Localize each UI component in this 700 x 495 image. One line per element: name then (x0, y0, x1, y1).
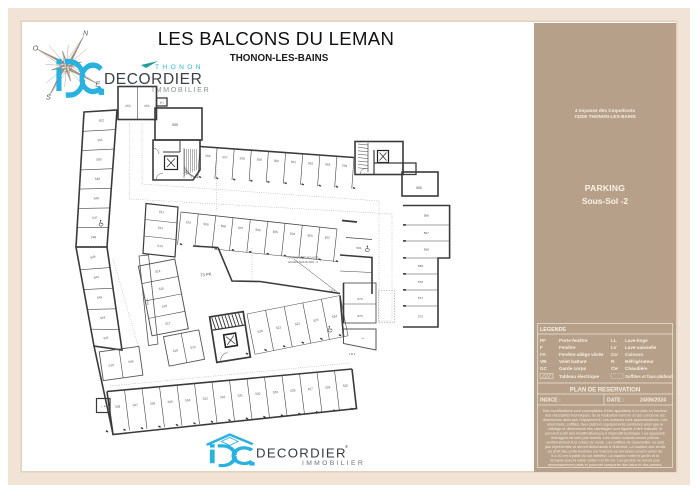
svg-text:509: 509 (203, 222, 209, 227)
svg-text:510: 510 (186, 220, 192, 225)
svg-text:Tableau électrique: Tableau électrique (559, 374, 599, 379)
svg-text:DATE :: DATE : (607, 398, 624, 404)
svg-text:524: 524 (332, 314, 338, 319)
svg-text:568: 568 (424, 248, 429, 252)
svg-text:IMMOBILIER: IMMOBILIER (302, 460, 365, 467)
svg-text:®: ® (345, 444, 348, 449)
svg-text:507: 507 (238, 226, 244, 231)
svg-text:GC: GC (540, 366, 548, 371)
svg-text:511: 511 (159, 210, 165, 215)
svg-text:504: 504 (290, 232, 296, 237)
svg-text:503: 503 (307, 233, 313, 238)
svg-text:520: 520 (257, 329, 263, 334)
svg-text:521: 521 (276, 325, 282, 330)
svg-text:536: 536 (150, 401, 156, 405)
svg-text:73 PK: 73 PK (200, 271, 212, 277)
svg-text:CU: CU (611, 352, 618, 357)
svg-text:Des modifications sont suscept: Des modifications sont susceptibles d'êt… (543, 409, 668, 413)
svg-text:501: 501 (356, 246, 361, 250)
svg-text:515: 515 (158, 286, 164, 291)
svg-text:514: 514 (155, 269, 161, 274)
svg-text:526: 526 (325, 385, 331, 389)
svg-text:567: 567 (424, 231, 429, 235)
svg-text:peuvent subir des modification: peuvent subir des modifications pour imp… (545, 432, 665, 436)
svg-text:PF: PF (540, 338, 546, 343)
svg-text:566: 566 (424, 213, 429, 217)
svg-text:537: 537 (132, 403, 138, 407)
svg-text:508: 508 (221, 224, 227, 229)
svg-text:Fenêtre allège vitrée: Fenêtre allège vitrée (559, 352, 604, 357)
svg-text:517: 517 (165, 321, 171, 326)
svg-text:543: 543 (97, 295, 103, 300)
svg-text:557: 557 (222, 155, 228, 159)
svg-text:574: 574 (357, 297, 362, 301)
svg-text:523: 523 (313, 318, 319, 323)
svg-text:565: 565 (416, 186, 422, 190)
svg-text:554: 554 (144, 104, 150, 108)
svg-text:552: 552 (99, 118, 105, 122)
svg-text:CH: CH (611, 366, 618, 371)
svg-text:502: 502 (325, 235, 331, 240)
svg-text:533: 533 (202, 396, 208, 400)
svg-text:531: 531 (237, 393, 243, 397)
svg-text:nécessairement plats et pourro: nécessairement plats et pourront comport… (548, 463, 663, 467)
svg-text:505: 505 (273, 230, 279, 235)
svg-text:des nécessités techniques, de: des nécessités techniques, de la réalisa… (545, 414, 665, 418)
svg-text:J.D 3: J.D 3 (349, 352, 356, 356)
svg-text:Chaudière: Chaudière (625, 366, 648, 371)
svg-text:terrasse pourra varier entre 0: terrasse pourra varier entre 0 et 60 cm.… (550, 459, 659, 463)
svg-text:535: 535 (167, 400, 173, 404)
svg-text:563: 563 (325, 162, 331, 166)
svg-text:571: 571 (418, 296, 423, 300)
svg-text:506: 506 (255, 228, 261, 233)
svg-text:F: F (540, 345, 543, 350)
svg-text:512: 512 (158, 226, 164, 231)
svg-text:527: 527 (308, 387, 314, 391)
svg-text:24/06/2024: 24/06/2024 (640, 398, 666, 404)
svg-text:câblage et dimensions des carr: câblage et dimensions des carrelages son… (548, 427, 663, 431)
svg-text:572: 572 (418, 315, 423, 319)
svg-text:530: 530 (255, 392, 261, 396)
svg-text:546: 546 (91, 235, 97, 239)
svg-text:R: R (611, 359, 615, 364)
svg-text:528: 528 (290, 388, 296, 392)
svg-text:ménagers ne sont pas fournis.: ménagers ne sont pas fournis. Les volets… (551, 436, 659, 440)
svg-text:556: 556 (205, 154, 211, 158)
svg-text:VB: VB (540, 359, 547, 364)
svg-text:538: 538 (115, 404, 121, 408)
svg-text:←×: ←× (100, 405, 106, 409)
svg-text:Volet battant: Volet battant (559, 359, 587, 364)
svg-text:562: 562 (308, 161, 314, 165)
svg-text:au droit des porte-fenêtres su: au droit des porte-fenêtres sur balcons … (548, 450, 663, 454)
svg-text:541: 541 (103, 335, 109, 340)
svg-text:5 à 10 cm à partir du sol inté: 5 à 10 cm à partir du sol intérieur. La … (551, 454, 660, 458)
svg-text:Porte-fenêtre: Porte-fenêtre (559, 338, 588, 343)
svg-text:522: 522 (294, 321, 300, 326)
svg-text:←: ← (361, 335, 366, 340)
svg-text:550: 550 (96, 157, 102, 161)
svg-text:513: 513 (157, 244, 163, 249)
svg-text:518: 518 (172, 348, 178, 353)
svg-text:539: 539 (108, 363, 114, 368)
svg-text:549: 549 (95, 177, 101, 181)
svg-text:529: 529 (273, 390, 279, 394)
svg-text:555: 555 (172, 123, 178, 127)
svg-text:547: 547 (92, 216, 98, 220)
svg-text:Cuisson: Cuisson (625, 352, 643, 357)
svg-text:a+1: a+1 (160, 103, 165, 105)
svg-text:LEGENDE: LEGENDE (540, 327, 566, 333)
svg-text:Réfrigérateur: Réfrigérateur (625, 359, 654, 364)
svg-text:564: 564 (342, 164, 348, 168)
svg-text:548: 548 (93, 196, 99, 200)
svg-text:Lave-vaisselle: Lave-vaisselle (625, 345, 657, 350)
svg-text:INDICE :: INDICE : (540, 398, 561, 404)
svg-text:dimensions ainsi que l'équipem: dimensions ainsi que l'équipement. Les s… (543, 418, 668, 422)
svg-text:559: 559 (257, 158, 263, 162)
svg-text:553: 553 (125, 104, 131, 108)
svg-text:LV: LV (611, 345, 617, 350)
svg-text:534: 534 (185, 398, 191, 402)
svg-text:retombées, soffites, faux plaf: retombées, soffites, faux plafond, équip… (547, 423, 663, 427)
svg-text:569: 569 (418, 264, 423, 268)
svg-text:pas représentés et seront débo: pas représentés et seront débordants à l… (545, 445, 666, 449)
svg-text:542: 542 (100, 315, 106, 320)
svg-text:516: 516 (162, 304, 168, 309)
svg-text:FA: FA (540, 352, 547, 357)
svg-text:Garde corps: Garde corps (559, 366, 587, 371)
svg-text:573: 573 (357, 314, 362, 318)
svg-text:570: 570 (418, 280, 423, 284)
svg-text:560: 560 (274, 159, 280, 163)
svg-text:DECORDIER: DECORDIER (256, 446, 347, 461)
svg-text:545: 545 (90, 255, 96, 260)
svg-text:519: 519 (190, 345, 196, 350)
svg-text:558: 558 (239, 156, 245, 160)
svg-text:conformément à la notice de ve: conformément à la notice de vente. Les s… (546, 441, 665, 445)
svg-text:Fenêtre: Fenêtre (559, 345, 576, 350)
svg-text:540: 540 (128, 359, 134, 364)
svg-text:Lave-linge: Lave-linge (625, 338, 648, 343)
svg-text:PLAN DE RESERVATION: PLAN DE RESERVATION (570, 388, 640, 394)
svg-text:Soffites et faux-plafond: Soffites et faux-plafond (625, 374, 673, 379)
svg-text:532: 532 (220, 395, 226, 399)
svg-text:525: 525 (343, 384, 349, 388)
svg-text:551: 551 (97, 138, 103, 142)
svg-text:LL: LL (611, 338, 617, 343)
svg-text:J.D 3: J.D 3 (329, 289, 336, 293)
svg-text:ACCES SOUS-SOL -1: ACCES SOUS-SOL -1 (288, 260, 318, 264)
svg-text:561: 561 (291, 160, 297, 164)
svg-text:544: 544 (93, 275, 99, 280)
